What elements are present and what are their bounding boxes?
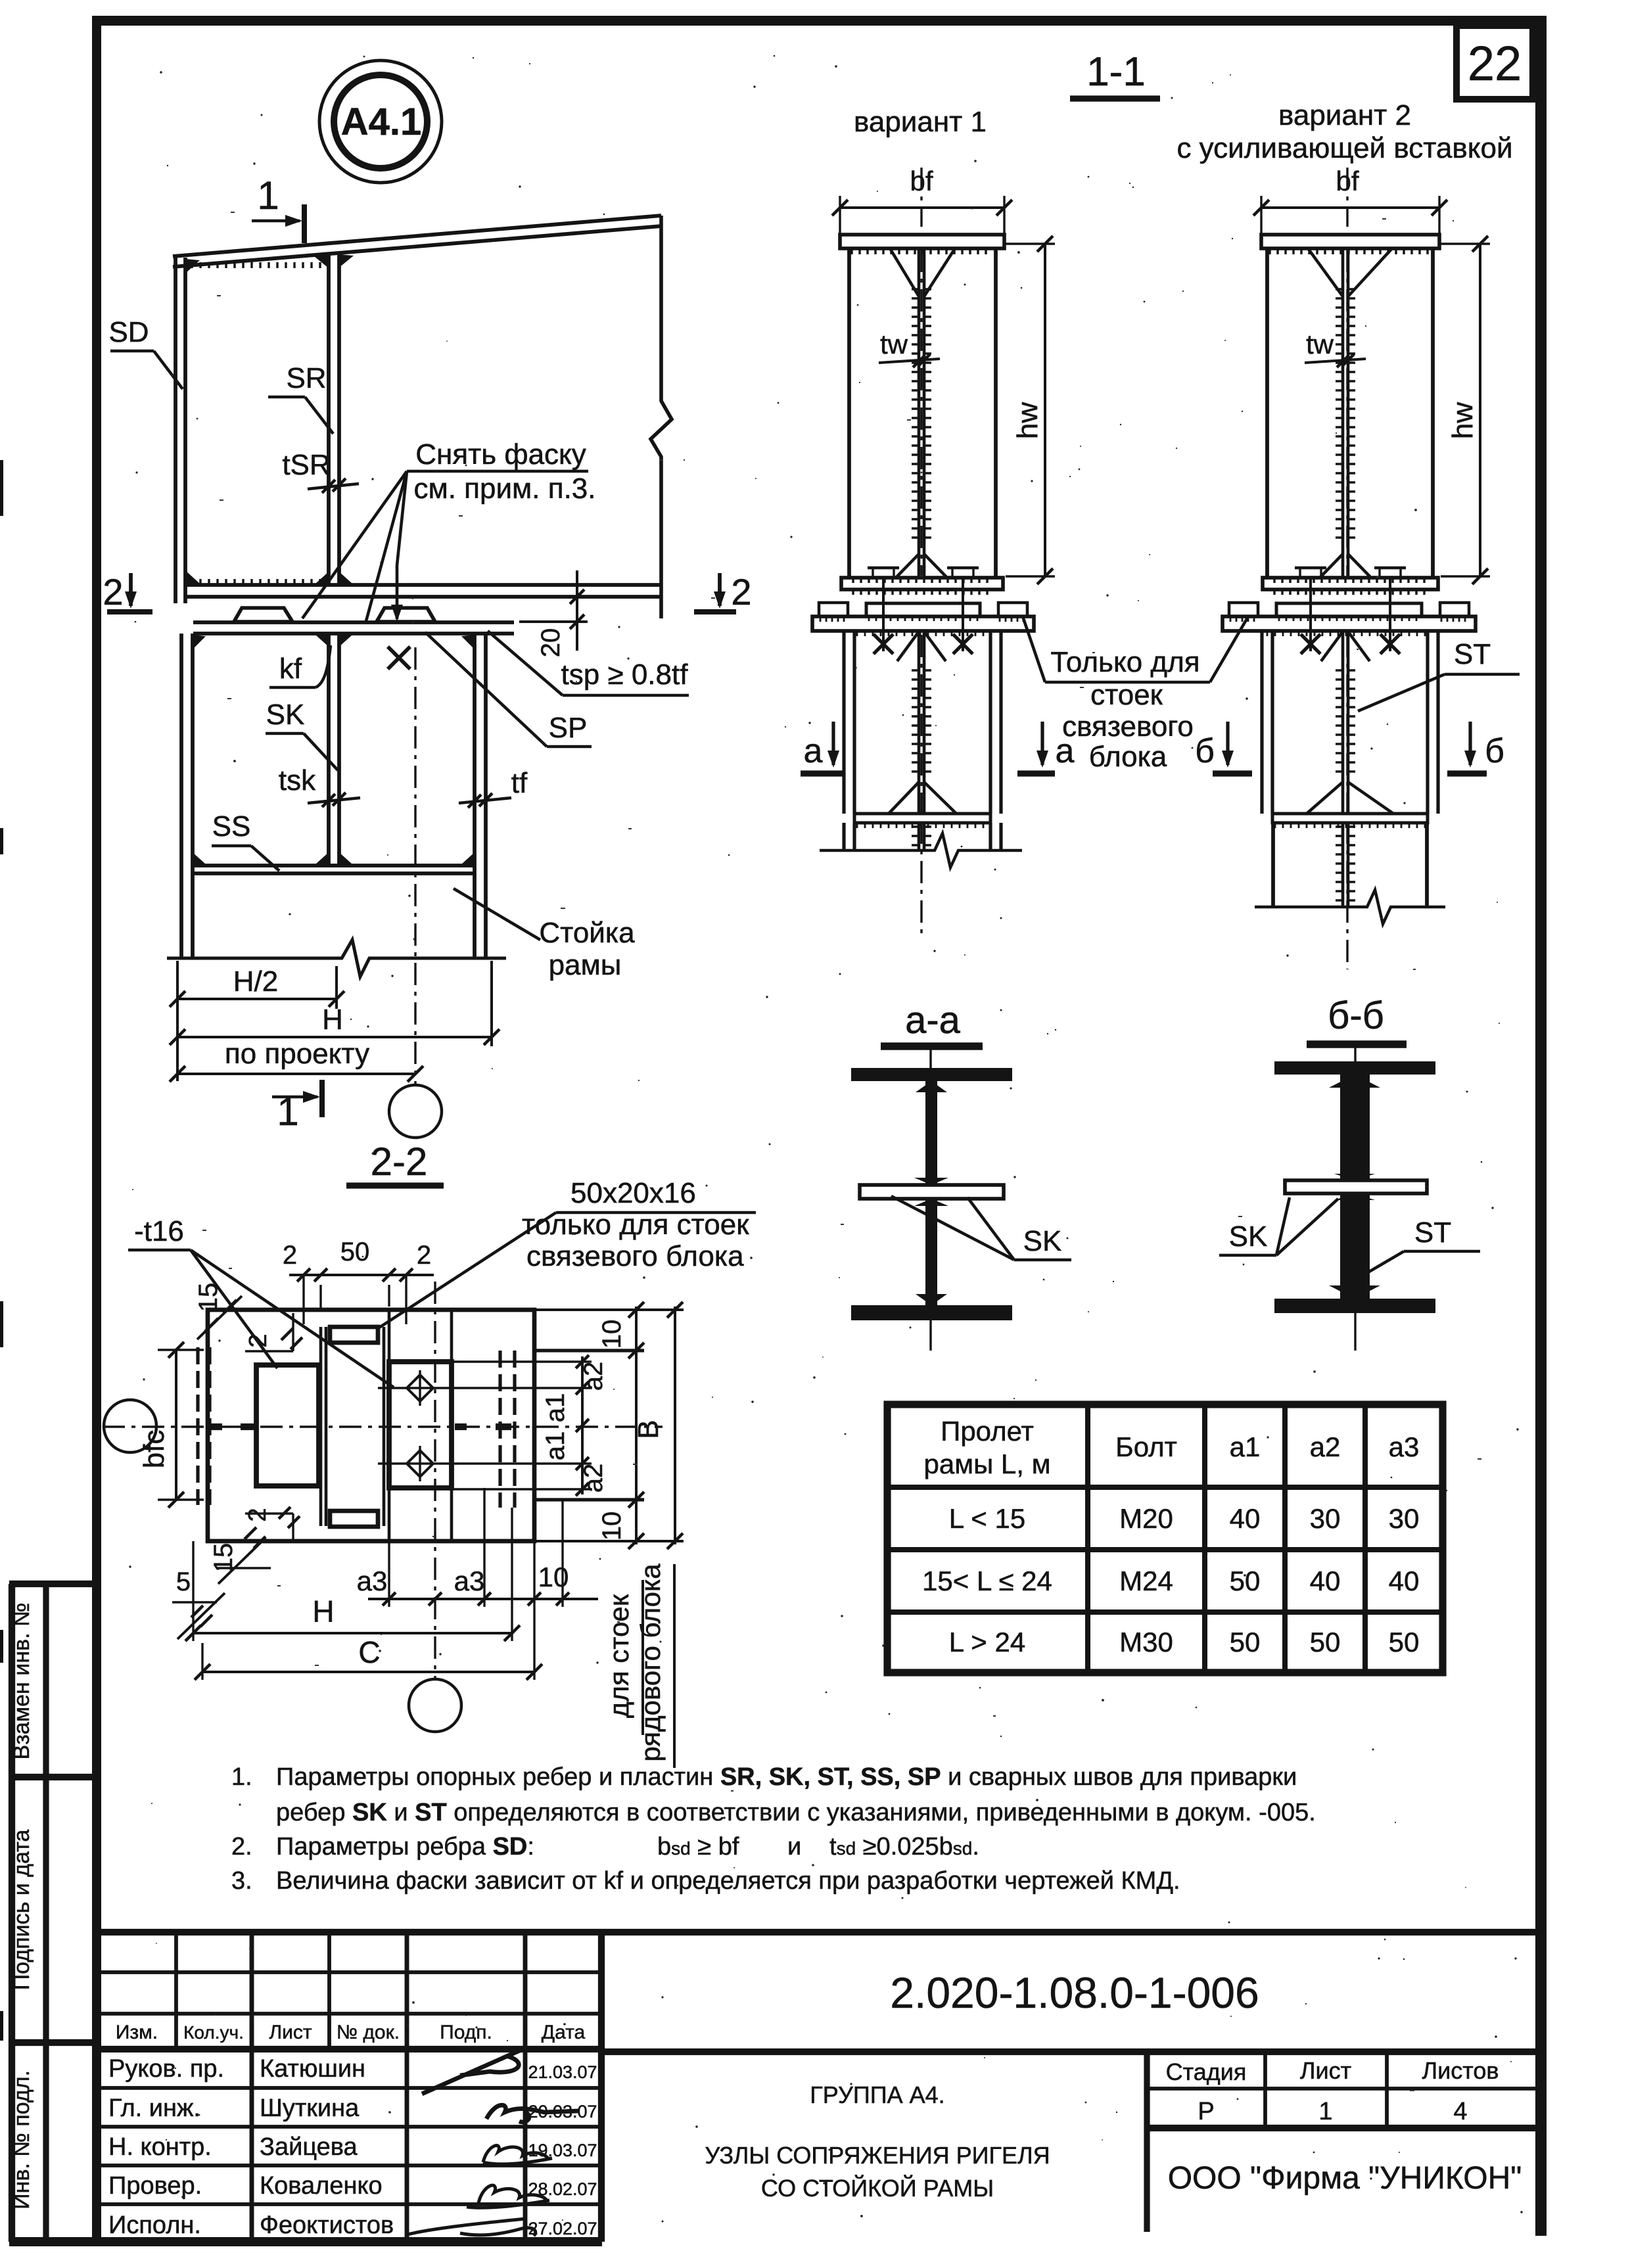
svg-text:Подпись и дата: Подпись и дата	[9, 1830, 34, 1991]
svg-text:50x20x16: 50x20x16	[570, 1177, 696, 1209]
svg-text:Катюшин: Катюшин	[260, 2055, 365, 2083]
svg-text:tsk: tsk	[279, 764, 316, 797]
svg-text:а3: а3	[454, 1565, 485, 1596]
svg-text:2-2: 2-2	[371, 1140, 428, 1184]
svg-text:L > 24: L > 24	[949, 1627, 1025, 1657]
svg-text:Величина фаски зависит от kf и: Величина фаски зависит от kf и определяе…	[276, 1867, 1180, 1895]
svg-text:Н. контр.: Н. контр.	[108, 2133, 212, 2161]
svg-text:Лист: Лист	[269, 2022, 312, 2043]
svg-text:2: 2	[244, 1508, 271, 1521]
svg-text:рамы: рамы	[549, 949, 622, 981]
svg-text:рядового блока: рядового блока	[635, 1563, 666, 1762]
svg-text:ST: ST	[1454, 638, 1491, 670]
svg-text:а2: а2	[579, 1362, 608, 1391]
svg-text:3.: 3.	[231, 1867, 252, 1895]
svg-text:с усиливающей вставкой: с усиливающей вставкой	[1176, 132, 1512, 164]
svg-text:SK: SK	[1023, 1225, 1062, 1257]
svg-text:kf: kf	[279, 653, 302, 685]
svg-text:см. прим. п.3.: см. прим. п.3.	[413, 473, 595, 505]
svg-text:30: 30	[1310, 1503, 1341, 1534]
svg-text:а2: а2	[1310, 1431, 1341, 1462]
svg-text:50: 50	[1389, 1627, 1420, 1657]
svg-text:Пролет: Пролет	[941, 1416, 1034, 1446]
svg-text:2: 2	[731, 571, 751, 613]
svg-text:Провер.: Провер.	[108, 2172, 202, 2200]
svg-text:Болт: Болт	[1115, 1431, 1177, 1462]
svg-text:SK: SK	[1229, 1220, 1268, 1253]
svg-text:10: 10	[538, 1562, 569, 1592]
svg-text:рамы L, м: рамы L, м	[923, 1448, 1050, 1479]
svg-text:Зайцева: Зайцева	[260, 2133, 358, 2161]
svg-text:1: 1	[257, 174, 279, 218]
svg-text:ГРУППА А4.: ГРУППА А4.	[810, 2081, 944, 2108]
svg-text:б: б	[1195, 732, 1215, 770]
svg-text:СО СТОЙКОЙ РАМЫ: СО СТОЙКОЙ РАМЫ	[761, 2174, 994, 2202]
svg-text:стоек: стоек	[1090, 679, 1163, 711]
svg-text:Шуткина: Шуткина	[260, 2094, 360, 2122]
svg-text:связевого: связевого	[1062, 710, 1194, 743]
svg-text:50: 50	[1230, 1565, 1261, 1596]
svg-text:по проекту: по проекту	[225, 1038, 369, 1070]
svg-text:50: 50	[1230, 1627, 1261, 1657]
svg-text:Н: Н	[312, 1594, 334, 1629]
svg-text:М30: М30	[1119, 1627, 1173, 1657]
svg-text:В: В	[632, 1420, 664, 1439]
svg-text:SK: SK	[266, 699, 305, 731]
svg-text:2: 2	[103, 571, 123, 613]
svg-text:для стоек: для стоек	[603, 1594, 634, 1718]
svg-text:УЗЛЫ СОПРЯЖЕНИЯ РИГЕЛЯ: УЗЛЫ СОПРЯЖЕНИЯ РИГЕЛЯ	[705, 2142, 1050, 2169]
svg-text:50: 50	[340, 1238, 370, 1266]
svg-text:30: 30	[1389, 1503, 1420, 1534]
svg-text:22: 22	[1468, 36, 1522, 91]
svg-text:а3: а3	[1389, 1431, 1420, 1462]
svg-text:40: 40	[1389, 1565, 1420, 1596]
svg-text:а1: а1	[541, 1431, 570, 1461]
svg-text:20: 20	[536, 628, 565, 658]
svg-text:27.02.07: 27.02.07	[528, 2219, 597, 2238]
svg-text:Руков. пр.: Руков. пр.	[108, 2055, 224, 2083]
svg-text:М20: М20	[1119, 1503, 1173, 1534]
svg-text:А4.1: А4.1	[341, 101, 422, 143]
svg-text:19.03.07: 19.03.07	[528, 2141, 597, 2160]
svg-text:21.03.07: 21.03.07	[528, 2062, 597, 2082]
svg-text:10: 10	[597, 1512, 626, 1541]
svg-text:SP: SP	[549, 712, 588, 744]
svg-text:Коваленко: Коваленко	[260, 2172, 383, 2200]
svg-text:связевого блока: связевого блока	[526, 1240, 744, 1272]
svg-text:2: 2	[283, 1241, 297, 1270]
svg-text:40: 40	[1230, 1503, 1261, 1534]
svg-text:а: а	[1056, 732, 1075, 770]
svg-text:Феоктистов: Феоктистов	[260, 2211, 394, 2239]
svg-text:Взамен инв. №: Взамен инв. №	[9, 1603, 34, 1760]
svg-text:Изм.: Изм.	[116, 2022, 158, 2043]
svg-text:а1: а1	[541, 1393, 570, 1423]
svg-text:15< L ≤ 24: 15< L ≤ 24	[922, 1565, 1052, 1596]
svg-text:2: 2	[417, 1241, 431, 1270]
svg-text:1: 1	[277, 1090, 298, 1134]
svg-text:а2: а2	[579, 1464, 608, 1493]
svg-text:hw: hw	[1447, 402, 1479, 439]
svg-text:С: С	[358, 1635, 380, 1669]
svg-text:Листов: Листов	[1422, 2057, 1499, 2084]
svg-text:а: а	[804, 732, 823, 770]
svg-text:Н: Н	[322, 1004, 343, 1036]
svg-text:Гл. инж.: Гл. инж.	[108, 2094, 200, 2122]
svg-text:Исполн.: Исполн.	[108, 2211, 201, 2239]
svg-text:М24: М24	[1119, 1565, 1173, 1596]
svg-text:40: 40	[1310, 1565, 1341, 1596]
svg-text:б-б: б-б	[1328, 994, 1384, 1037]
svg-text:б: б	[1485, 732, 1504, 770]
svg-text:2.020-1.08.0-1-006: 2.020-1.08.0-1-006	[890, 1968, 1259, 2017]
svg-text:Параметры опорных ребер и плас: Параметры опорных ребер и пластин SR, SK…	[276, 1763, 1297, 1791]
svg-text:2.: 2.	[231, 1833, 252, 1861]
svg-text:L < 15: L < 15	[949, 1503, 1025, 1534]
svg-text:4: 4	[1453, 2098, 1467, 2125]
svg-text:ST: ST	[1414, 1216, 1451, 1249]
svg-text:Снять фаску: Снять фаску	[415, 438, 586, 471]
svg-text:1.: 1.	[231, 1763, 252, 1791]
svg-text:Подп.: Подп.	[440, 2022, 492, 2043]
svg-text:Инв. № подл.: Инв. № подл.	[9, 2070, 34, 2210]
svg-text:а3: а3	[357, 1565, 388, 1596]
svg-text:Стадия: Стадия	[1166, 2058, 1247, 2085]
svg-text:Р: Р	[1198, 2098, 1214, 2125]
svg-text:SS: SS	[212, 810, 251, 843]
svg-text:вариант 2: вариант 2	[1278, 99, 1411, 131]
svg-text:Дата: Дата	[542, 2022, 586, 2043]
svg-text:SD: SD	[108, 316, 149, 348]
svg-text:5: 5	[176, 1567, 191, 1596]
svg-text:tSR: tSR	[282, 449, 330, 481]
svg-text:10: 10	[597, 1320, 626, 1349]
svg-text:Параметры ребра SD:bsd ≥ bfиts: Параметры ребра SD:bsd ≥ bfиtsd ≥0.025bs…	[276, 1833, 979, 1861]
svg-text:SR: SR	[286, 362, 326, 394]
svg-text:а1: а1	[1230, 1431, 1261, 1462]
svg-text:Только для: Только для	[1050, 646, 1199, 678]
svg-text:Стойка: Стойка	[539, 917, 635, 949]
svg-text:50: 50	[1310, 1627, 1341, 1657]
svg-text:Кол.уч.: Кол.уч.	[183, 2022, 244, 2043]
svg-text:ребер SK и ST определяются в с: ребер SK и ST определяются в соответстви…	[276, 1799, 1316, 1826]
svg-text:-t16: -t16	[134, 1215, 184, 1247]
svg-text:ООО "Фирма "УНИКОН": ООО "Фирма "УНИКОН"	[1168, 2161, 1522, 2196]
svg-text:1-1: 1-1	[1086, 49, 1146, 95]
svg-text:блока: блока	[1089, 741, 1167, 773]
svg-text:вариант 1: вариант 1	[854, 106, 987, 138]
svg-text:а-а: а-а	[905, 999, 961, 1042]
svg-text:tf: tf	[511, 767, 528, 799]
svg-text:№ док.: № док.	[337, 2022, 400, 2043]
svg-text:hw: hw	[1012, 402, 1044, 439]
svg-text:Н/2: Н/2	[233, 965, 278, 998]
svg-text:1: 1	[1318, 2098, 1332, 2125]
svg-text:tsp ≥ 0.8tf: tsp ≥ 0.8tf	[561, 659, 689, 691]
svg-text:2: 2	[244, 1333, 272, 1347]
svg-text:Лист: Лист	[1300, 2057, 1351, 2084]
svg-text:tw: tw	[1306, 329, 1334, 359]
svg-text:tw: tw	[880, 329, 908, 359]
